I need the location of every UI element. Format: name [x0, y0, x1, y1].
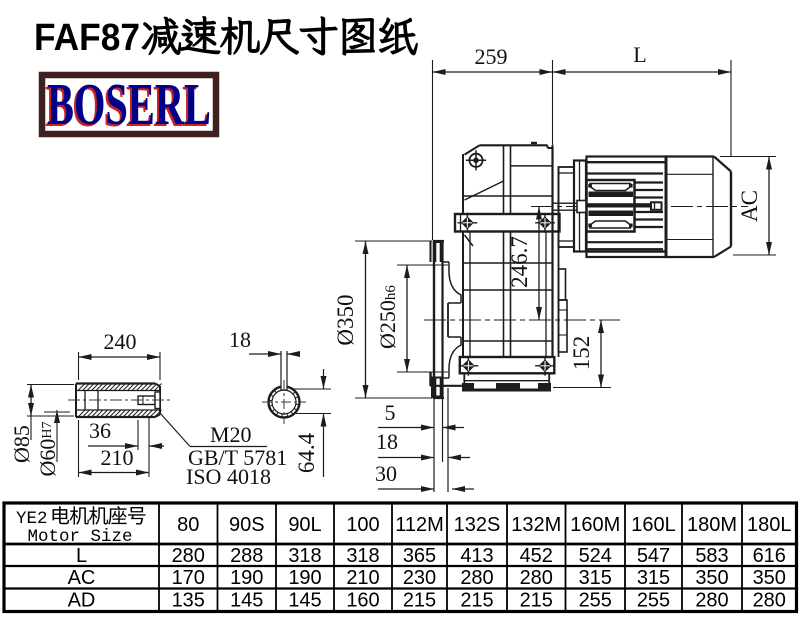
svg-text:145: 145 — [230, 590, 263, 612]
svg-text:Ø350: Ø350 — [333, 294, 358, 345]
svg-text:M20: M20 — [210, 422, 252, 447]
svg-text:30: 30 — [375, 461, 397, 486]
svg-text:160: 160 — [346, 590, 379, 612]
svg-text:YE2: YE2 — [16, 509, 48, 529]
svg-text:210: 210 — [346, 567, 379, 589]
svg-text:132M: 132M — [511, 514, 561, 536]
svg-text:280: 280 — [520, 567, 553, 589]
svg-text:255: 255 — [579, 590, 612, 612]
svg-text:152: 152 — [569, 336, 594, 371]
svg-text:246.7: 246.7 — [507, 236, 532, 288]
svg-text:259: 259 — [475, 44, 508, 69]
svg-text:190: 190 — [288, 567, 321, 589]
svg-text:145: 145 — [288, 590, 321, 612]
svg-text:190: 190 — [230, 567, 263, 589]
svg-text:365: 365 — [403, 545, 436, 567]
svg-text:135: 135 — [172, 590, 205, 612]
svg-text:80: 80 — [177, 514, 199, 536]
svg-text:L: L — [76, 545, 87, 567]
svg-text:AC: AC — [68, 567, 96, 589]
svg-text:18: 18 — [376, 429, 398, 454]
svg-text:5: 5 — [385, 400, 396, 425]
svg-text:Ø85: Ø85 — [9, 425, 34, 463]
svg-text:170: 170 — [172, 567, 205, 589]
svg-text:112M: 112M — [395, 514, 444, 536]
svg-text:255: 255 — [637, 590, 670, 612]
svg-text:315: 315 — [579, 567, 612, 589]
svg-text:230: 230 — [403, 567, 436, 589]
svg-text:413: 413 — [460, 545, 493, 567]
svg-text:280: 280 — [172, 545, 205, 567]
svg-text:288: 288 — [230, 545, 263, 567]
svg-text:452: 452 — [520, 545, 553, 567]
svg-text:280: 280 — [753, 590, 786, 612]
svg-text:L: L — [633, 42, 646, 67]
svg-text:215: 215 — [403, 590, 436, 612]
svg-text:180M: 180M — [687, 514, 737, 536]
svg-text:BOSERL: BOSERL — [47, 71, 211, 137]
svg-text:AD: AD — [68, 590, 96, 612]
svg-text:AC: AC — [737, 190, 762, 222]
svg-text:FAF87: FAF87 — [34, 17, 140, 59]
svg-text:64.4: 64.4 — [294, 432, 319, 473]
svg-text:350: 350 — [695, 567, 728, 589]
svg-text:315: 315 — [637, 567, 670, 589]
svg-text:160M: 160M — [570, 514, 620, 536]
svg-text:132S: 132S — [454, 514, 501, 536]
svg-text:215: 215 — [520, 590, 553, 612]
svg-text:280: 280 — [695, 590, 728, 612]
svg-text:36: 36 — [89, 418, 111, 443]
svg-text:ISO 4018: ISO 4018 — [186, 464, 271, 489]
svg-text:616: 616 — [753, 545, 786, 567]
svg-text:318: 318 — [288, 545, 321, 567]
svg-text:210: 210 — [101, 445, 134, 470]
svg-text:100: 100 — [346, 514, 379, 536]
svg-text:350: 350 — [753, 567, 786, 589]
svg-text:Motor Size: Motor Size — [27, 527, 132, 547]
svg-text:280: 280 — [460, 567, 493, 589]
svg-text:240: 240 — [104, 329, 137, 354]
svg-text:583: 583 — [695, 545, 728, 567]
svg-text:160L: 160L — [631, 514, 676, 536]
svg-text:90L: 90L — [288, 514, 321, 536]
svg-text:318: 318 — [346, 545, 379, 567]
svg-text:18: 18 — [229, 327, 251, 352]
svg-text:524: 524 — [579, 545, 612, 567]
svg-text:90S: 90S — [229, 514, 265, 536]
svg-text:215: 215 — [460, 590, 493, 612]
svg-text:547: 547 — [637, 545, 670, 567]
svg-text:180L: 180L — [747, 514, 792, 536]
